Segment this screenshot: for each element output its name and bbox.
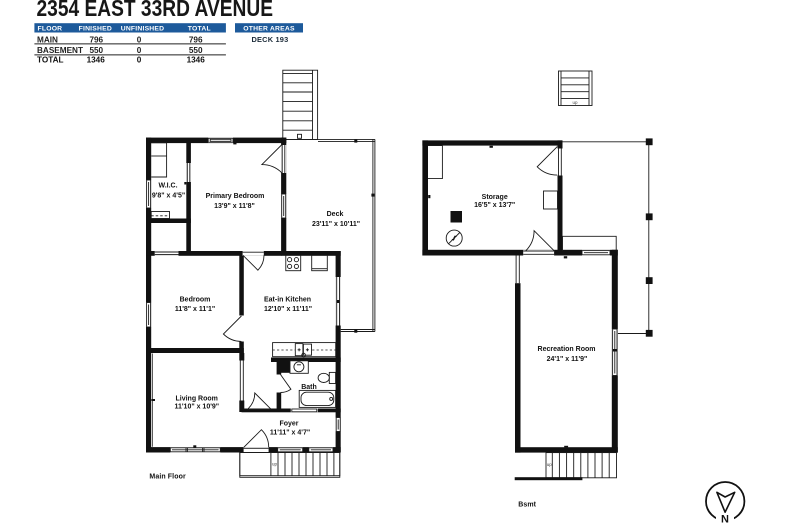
svg-text:up: up (547, 462, 553, 467)
svg-text:N: N (721, 514, 729, 526)
svg-text:up: up (272, 462, 278, 467)
svg-text:0: 0 (137, 55, 142, 64)
svg-text:11'8" x 11'1": 11'8" x 11'1" (175, 306, 215, 313)
svg-text:Bsmt: Bsmt (518, 502, 536, 509)
svg-text:BASEMENT: BASEMENT (37, 46, 83, 55)
svg-text:up: up (573, 100, 579, 105)
svg-text:796: 796 (189, 35, 203, 44)
svg-text:UNFINISHED: UNFINISHED (121, 26, 165, 33)
svg-text:550: 550 (89, 46, 103, 55)
svg-text:Main Floor: Main Floor (149, 474, 186, 481)
svg-text:Bath: Bath (301, 384, 317, 391)
svg-text:FINISHED: FINISHED (79, 26, 112, 33)
svg-text:2354 EAST 33RD AVENUE: 2354 EAST 33RD AVENUE (37, 0, 274, 21)
svg-text:13'9" x 11'8": 13'9" x 11'8" (214, 203, 255, 210)
svg-text:Eat-in Kitchen: Eat-in Kitchen (264, 297, 311, 304)
svg-text:FLOOR: FLOOR (38, 26, 63, 33)
svg-text:796: 796 (89, 35, 103, 44)
svg-text:550: 550 (189, 46, 203, 55)
svg-text:Deck: Deck (327, 211, 344, 218)
svg-text:24'1" x 11'9": 24'1" x 11'9" (547, 356, 588, 363)
svg-text:TOTAL: TOTAL (37, 55, 64, 64)
svg-text:OTHER AREAS: OTHER AREAS (243, 26, 295, 33)
svg-text:11'11" x 4'7": 11'11" x 4'7" (270, 430, 310, 437)
svg-text:0: 0 (137, 46, 142, 55)
svg-text:Foyer: Foyer (279, 421, 298, 428)
svg-text:DECK 193: DECK 193 (252, 35, 289, 44)
svg-text:Living Room: Living Room (176, 395, 218, 402)
svg-text:MAIN: MAIN (37, 35, 58, 44)
svg-text:Recreation Room: Recreation Room (538, 346, 596, 353)
svg-text:TOTAL: TOTAL (188, 26, 211, 33)
svg-text:1346: 1346 (87, 55, 106, 64)
svg-text:12'10" x 11'11": 12'10" x 11'11" (264, 306, 312, 313)
svg-text:Bedroom: Bedroom (180, 297, 211, 304)
svg-text:11'10" x 10'9": 11'10" x 10'9" (174, 403, 219, 410)
svg-text:0: 0 (137, 35, 142, 44)
svg-text:Primary Bedroom: Primary Bedroom (206, 193, 265, 200)
svg-text:1346: 1346 (187, 55, 206, 64)
svg-text:W.I.C.: W.I.C. (158, 183, 177, 190)
svg-text:16'5" x 13'7": 16'5" x 13'7" (474, 202, 515, 209)
svg-text:23'11" x 10'11": 23'11" x 10'11" (312, 221, 360, 228)
svg-text:9'8" x 4'5": 9'8" x 4'5" (152, 192, 185, 199)
svg-text:Storage: Storage (482, 194, 508, 201)
